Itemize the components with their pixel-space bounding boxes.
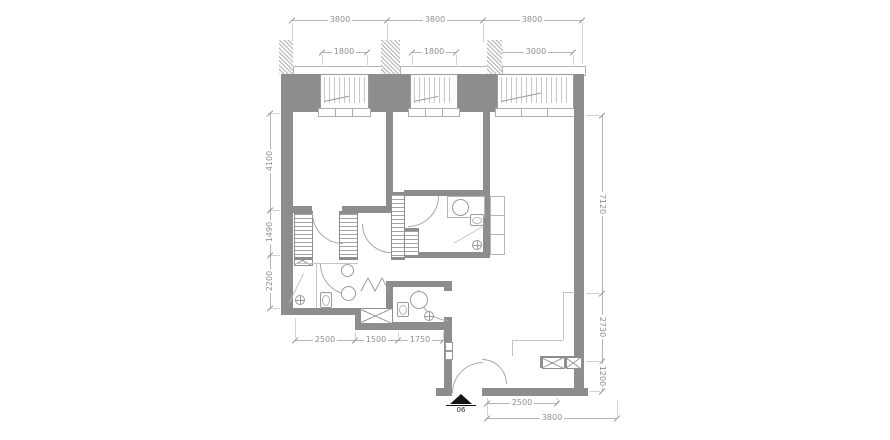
- balcony-window: [410, 74, 458, 110]
- dimension-label: 2500: [510, 399, 534, 407]
- shower-head-icon: [472, 240, 482, 250]
- extension-line: [322, 55, 323, 65]
- extension-line: [586, 293, 600, 294]
- sink-icon: [452, 199, 469, 216]
- wall: [367, 74, 412, 112]
- dimension-label: 3800: [520, 16, 544, 24]
- extension-line: [582, 23, 583, 64]
- column-hatched: [279, 40, 293, 74]
- door-arc: [408, 196, 439, 227]
- dimension-label: 3000: [524, 48, 548, 56]
- window-sill: [352, 108, 371, 117]
- dim-tick: [614, 415, 620, 421]
- door-arc: [312, 213, 343, 244]
- kitchen-counter-line: [563, 292, 575, 293]
- sink-icon: [341, 264, 354, 277]
- extension-line: [590, 391, 600, 392]
- dimension-label: 1490: [266, 220, 274, 244]
- kitchen-counter-line: [563, 292, 564, 340]
- dimension-label: 7120: [598, 192, 606, 216]
- shaft-x-box: [360, 308, 393, 324]
- extension-line: [586, 115, 600, 116]
- toilet-icon: [397, 302, 409, 317]
- counter-cell: [490, 234, 505, 255]
- dimension-label: 3800: [328, 16, 352, 24]
- column-hatched: [487, 40, 502, 74]
- extension-line: [367, 55, 368, 65]
- dim-tick: [554, 400, 560, 406]
- dimension-label: 3800: [540, 414, 564, 422]
- dimension-label: 2500: [313, 336, 337, 344]
- dimension-label: 2200: [266, 269, 274, 293]
- dimension-label: 3800: [423, 16, 447, 24]
- shower-head-icon: [295, 295, 305, 305]
- dimension-label: 4100: [266, 149, 274, 173]
- counter-cell: [490, 196, 505, 217]
- column-hatched: [381, 40, 400, 74]
- window-sill: [442, 108, 460, 117]
- door-jamb: [445, 351, 453, 360]
- sink-icon: [410, 291, 428, 309]
- extension-line: [586, 361, 600, 362]
- door-arc: [362, 224, 391, 253]
- wall: [483, 112, 490, 258]
- wardrobe: [391, 192, 405, 260]
- shower-head-icon: [424, 311, 434, 321]
- extension-line: [295, 318, 296, 338]
- window-sill: [495, 108, 523, 117]
- closet-zigzag: [360, 276, 390, 292]
- door-arc: [482, 359, 507, 384]
- floor-plan-canvas: 3800 3800 3800 1800 1800 3000 4100 1490 …: [0, 0, 890, 440]
- kitchen-counter-line: [512, 340, 563, 341]
- shaft-x-box: [566, 357, 582, 369]
- wall: [482, 388, 588, 396]
- dimension-label: 2730: [598, 315, 606, 339]
- extension-line: [573, 55, 574, 65]
- dimension-label: 1200: [598, 364, 606, 388]
- dim-tick: [599, 388, 605, 394]
- window-sill: [547, 108, 575, 117]
- extension-line: [617, 400, 618, 416]
- partition-line: [316, 264, 317, 308]
- entrance-marker-triangle: [450, 394, 472, 404]
- wardrobe: [294, 211, 313, 260]
- extension-line: [483, 23, 484, 42]
- sink-icon: [341, 286, 356, 301]
- balcony-window: [320, 74, 369, 110]
- door-jamb: [445, 342, 453, 351]
- window-sill: [521, 108, 549, 117]
- dimension-label: 1800: [332, 48, 356, 56]
- kitchen-counter-line: [512, 340, 513, 356]
- extension-line: [456, 55, 457, 65]
- counter-cell: [490, 215, 505, 236]
- extension-line: [412, 55, 413, 65]
- shaft-x-box: [542, 357, 565, 369]
- wall: [390, 281, 452, 287]
- wall: [281, 74, 293, 315]
- wall: [456, 74, 497, 112]
- dimension-line: [602, 115, 603, 391]
- balcony-window: [497, 74, 574, 110]
- dimension-label: 1750: [408, 336, 432, 344]
- toilet-icon: [470, 214, 484, 226]
- toilet-icon: [320, 292, 332, 308]
- entrance-door-arc: [452, 362, 483, 393]
- dimension-label: 1800: [422, 48, 446, 56]
- dimension-label: 1500: [364, 336, 388, 344]
- wall: [574, 108, 584, 396]
- entrance-marker-label: 06: [457, 407, 466, 414]
- wardrobe: [404, 228, 419, 258]
